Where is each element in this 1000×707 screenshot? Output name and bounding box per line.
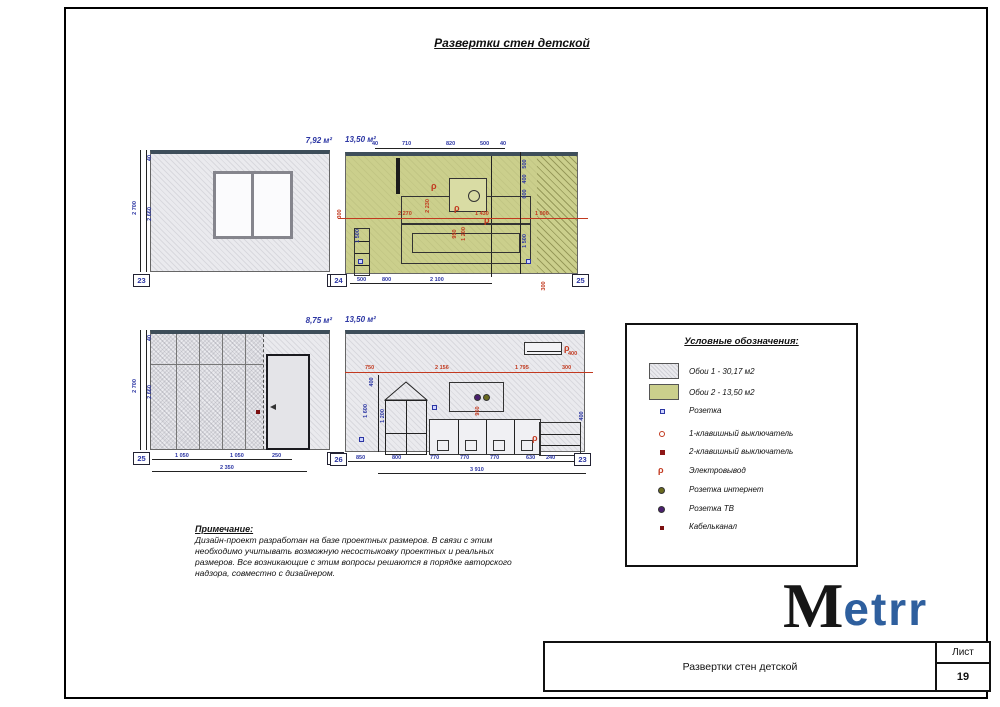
dim-left-2: 1 200: [380, 401, 386, 431]
dim-line-right-chain: [520, 152, 521, 274]
dim-top-1: 2 156: [435, 365, 449, 371]
legend-label: Розетка: [689, 406, 721, 415]
shelf-unit: [539, 422, 581, 456]
dim-bottom-1: 1 050: [230, 453, 244, 459]
sheet-number: 19: [937, 664, 989, 690]
legend-label: Обои 1 - 30,17 м2: [689, 367, 755, 376]
socket-icon: [660, 409, 665, 414]
legend-label: Обои 2 - 13,50 м2: [689, 388, 755, 397]
dim-line-total: [152, 471, 307, 472]
ladder-rung: [355, 265, 369, 266]
dim-top-2: 1 795: [515, 365, 529, 371]
dim-mid-0: 300: [337, 199, 343, 229]
dim-right-3: 1 500: [522, 226, 528, 256]
shelf-line: [540, 434, 580, 435]
ac-unit: [524, 342, 562, 355]
dim-bottom-0: 500: [357, 277, 366, 283]
dim-mid-2: 1 430: [475, 211, 489, 217]
dim-bottom-0: 850: [356, 455, 365, 461]
elevation-wall-23-24: 7,92 м² 2 700 2 660 40 23 24: [130, 133, 350, 293]
dim-line-height-outer: [140, 330, 141, 450]
dim-mid-3: 1 000: [535, 211, 549, 217]
dim-line-left-chain: [378, 375, 379, 452]
electric-outlet-icon: ρ: [658, 466, 664, 475]
switch-1key-icon: [659, 431, 665, 437]
dim-top-2: 820: [446, 141, 455, 147]
wardrobe: [151, 334, 263, 449]
dim-right-0: 400: [579, 401, 585, 431]
unit-divider: [486, 420, 487, 454]
wardrobe-shelf-line: [151, 364, 263, 365]
drawer-front: [437, 440, 449, 451]
switch-2key-icon: [660, 450, 665, 455]
title-block: Развертки стен детской Лист 19: [543, 641, 991, 692]
dim-top-0: 40: [372, 141, 378, 147]
legend-label: Кабельканал: [689, 522, 737, 531]
notes-title: Примечание:: [195, 524, 517, 534]
window-mullion: [251, 174, 254, 236]
area-label: 13,50 м²: [345, 315, 376, 324]
dim-line-height-outer: [140, 150, 141, 272]
ac-vent-line: [527, 351, 561, 352]
company-logo: Metrr: [783, 572, 928, 634]
electric-outlet-marker: ρ: [454, 204, 460, 213]
house-cabinet: [385, 400, 427, 455]
door: [266, 354, 310, 450]
door-handle: [270, 404, 276, 410]
wardrobe-panel-line: [245, 334, 246, 449]
sheet-label: Лист: [937, 643, 989, 664]
dim-line-total: [378, 473, 586, 474]
dim-top-1: 710: [402, 141, 411, 147]
area-label: 7,92 м²: [306, 136, 332, 145]
dim-line-top-red: [345, 372, 593, 373]
wall-surface-wallpaper1: ρ: [345, 330, 585, 452]
elevation-wall-26-23: 13,50 м² ρ: [330, 313, 598, 488]
notes-block: Примечание: Дизайн-проект разработан на …: [195, 524, 517, 579]
dim-top-4: 40: [500, 141, 506, 147]
dim-top-gap: 40: [147, 143, 153, 173]
wall-marker-25: 25: [572, 274, 589, 287]
dim-line-bottom: [348, 461, 586, 462]
dim-left-0: 400: [369, 367, 375, 397]
drawing-sheet: Развертки стен детской 7,92 м² 2 700 2 6…: [0, 0, 1000, 707]
dim-left-0: 1 500: [355, 221, 361, 251]
dim-center-0: 2 230: [425, 191, 431, 221]
legend-label: Электровывод: [689, 466, 746, 475]
dim-center-0: 950: [475, 396, 481, 426]
house-cabinet-roof: [384, 381, 428, 401]
elevation-wall-24-25: 13,50 м² 40 710 820 500 40: [330, 133, 595, 298]
dim-bottom-rot: 300: [541, 271, 547, 301]
title-block-name: Развертки стен детской: [545, 643, 937, 690]
wall-marker-23: 23: [574, 453, 591, 466]
dim-bottom-total: 3 910: [470, 467, 484, 473]
wardrobe-panel-line: [176, 334, 177, 449]
socket-marker: [358, 259, 363, 264]
dim-bottom-total: 2 350: [220, 465, 234, 471]
wall-marker-24: 24: [330, 274, 347, 287]
dim-ac: 400: [568, 351, 577, 357]
dim-center-2: 1 200: [461, 219, 467, 249]
legend-label: 2-клавишный выключатель: [689, 447, 793, 456]
dim-top-3: 300: [562, 365, 571, 371]
dim-right-2: 600: [522, 179, 528, 209]
legend-box: Условные обозначения: Обои 1 - 30,17 м2 …: [625, 323, 858, 567]
legend-title: Условные обозначения:: [627, 336, 856, 347]
dim-bottom-2: 250: [272, 453, 281, 459]
drawer-front: [465, 440, 477, 451]
logo-letter-m: M: [783, 578, 843, 634]
dim-line-bottom: [350, 283, 492, 284]
dim-bottom-3: 770: [460, 455, 469, 461]
cable-channel-marker: [256, 410, 260, 414]
dim-bottom-0: 1 050: [175, 453, 189, 459]
dim-bottom-1: 800: [382, 277, 391, 283]
wall-surface-wallpaper1: [150, 330, 330, 450]
dim-top-3: 500: [480, 141, 489, 147]
dim-mid-1: 2 270: [398, 211, 412, 217]
wardrobe-panel-line: [199, 334, 200, 449]
wardrobe-panel-line: [222, 334, 223, 449]
socket-marker: [432, 405, 437, 410]
dim-height-outer: 2 700: [132, 371, 138, 401]
wallpaper-2-swatch: [649, 384, 679, 400]
dim-center-1: 950: [452, 219, 458, 249]
area-label: 8,75 м²: [306, 316, 332, 325]
notes-body: Дизайн-проект разработан на базе проектн…: [195, 535, 517, 579]
page-title: Развертки стен детской: [347, 36, 677, 50]
dim-line-bottom: [152, 459, 292, 460]
dim-bottom-4: 770: [490, 455, 499, 461]
wall-marker-25: 25: [133, 452, 150, 465]
curtain-rail: [396, 158, 400, 194]
drawer-front: [493, 440, 505, 451]
socket-marker: [526, 259, 531, 264]
legend-label: Розетка ТВ: [689, 504, 734, 513]
dim-bottom-1: 800: [392, 455, 401, 461]
ladder-rung: [355, 253, 369, 254]
wall-marker-26: 26: [330, 453, 347, 466]
title-block-side: Лист 19: [937, 643, 989, 690]
house-cabinet-divider: [406, 401, 407, 454]
wall-marker-23: 23: [133, 274, 150, 287]
elevation-wall-25-26: 8,75 м² 2 700 2 660 40 1 050 1 050 250: [130, 313, 350, 483]
tv-socket-icon: [658, 506, 665, 513]
cable-channel-icon: [660, 526, 664, 530]
unit-divider: [458, 420, 459, 454]
legend-label: 1-клавишный выключатель: [689, 429, 793, 438]
wall-dashed-division: [263, 334, 264, 449]
electric-outlet-marker: ρ: [431, 182, 437, 191]
internet-socket-marker: [483, 394, 490, 401]
dim-bottom-2: 770: [430, 455, 439, 461]
logo-text: etrr: [843, 584, 928, 634]
dim-left-1: 1 600: [363, 396, 369, 426]
socket-marker: [359, 437, 364, 442]
dim-height-outer: 2 700: [132, 193, 138, 223]
legend-label: Розетка интернет: [689, 485, 764, 494]
dim-top-gap: 40: [147, 323, 153, 353]
shelf-line: [540, 445, 580, 446]
window: [213, 171, 293, 239]
dim-bottom-6: 240: [546, 455, 555, 461]
dim-height-inner: 2 660: [147, 199, 153, 229]
internet-socket-icon: [658, 487, 665, 494]
electric-outlet-marker: ρ: [532, 434, 538, 443]
unit-divider: [514, 420, 515, 454]
dim-height-inner: 2 660: [147, 377, 153, 407]
house-cabinet-shelf: [386, 433, 426, 434]
dim-bottom-5: 630: [526, 455, 535, 461]
round-detail: [468, 190, 480, 202]
dim-line-top: [375, 148, 505, 149]
dim-bottom-2: 2 100: [430, 277, 444, 283]
wallpaper-1-swatch: [649, 363, 679, 379]
drawer-units: [429, 419, 541, 455]
